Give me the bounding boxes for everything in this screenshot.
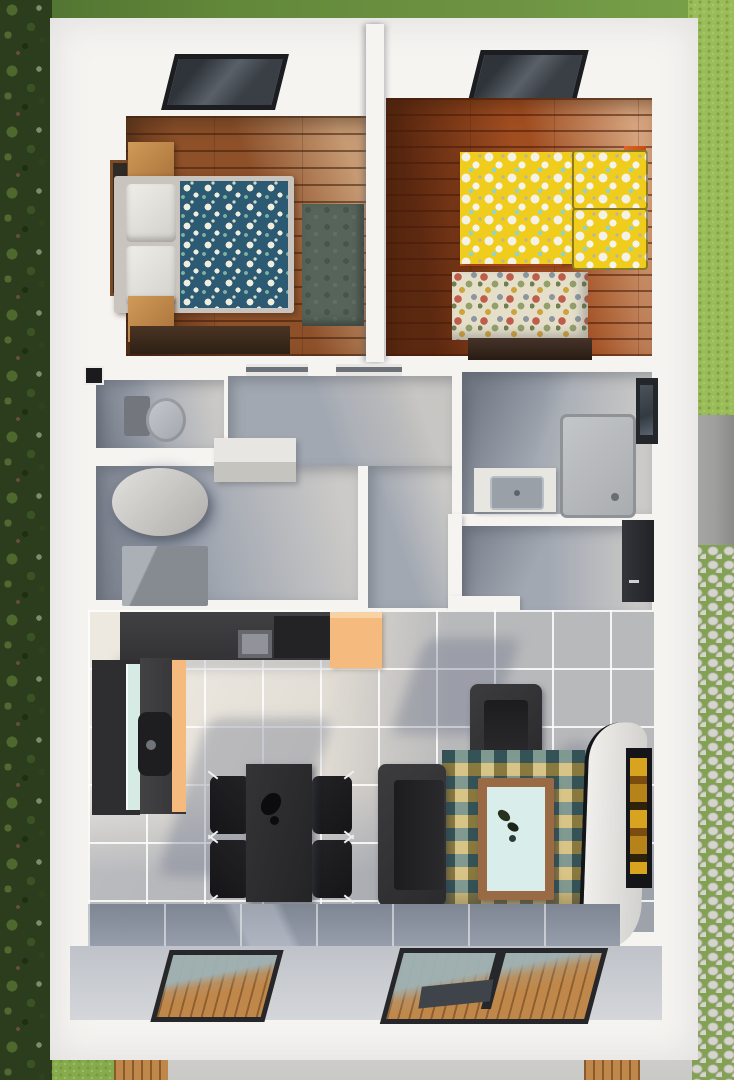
bedroom2-skylight (467, 50, 588, 104)
kitchen-stove (238, 630, 272, 658)
bedroom1-bed (114, 176, 294, 313)
wc-wall-niche (84, 366, 104, 385)
coffee-table-plant-2 (506, 821, 520, 834)
laundry-wall-shelf (214, 438, 296, 482)
floorplan-scene (0, 0, 734, 1080)
hedge-left (0, 0, 52, 1080)
bedroom1-green-rug (302, 204, 364, 326)
coffee-table-decor (509, 835, 516, 842)
kitchen-orange-cabinet (330, 612, 382, 668)
bathroom-window (636, 378, 658, 444)
armchair-top (470, 684, 542, 758)
vanity-basin (490, 476, 544, 510)
toilet-bowl (146, 398, 186, 442)
bedroom1-duvet (180, 181, 288, 308)
coffee-table (478, 778, 554, 900)
bedroom1-pillow-1 (126, 184, 176, 242)
bedroom2-pillow-top (572, 150, 648, 210)
dining-chair-3 (312, 776, 352, 834)
table-bottle (257, 789, 286, 819)
living-bottom-wall (88, 904, 620, 950)
glass-door-left (150, 950, 283, 1022)
water-tank (112, 468, 208, 536)
bedroom2-pillow-bottom (572, 208, 648, 270)
door-lintel-bedroom1 (246, 364, 308, 376)
hallway-floor-lower (368, 466, 452, 608)
bedroom2-dresser (468, 338, 592, 360)
dining-chair-2 (210, 840, 250, 898)
dining-chair-1 (210, 776, 250, 834)
kitchen-sink (138, 712, 172, 776)
vanity-counter (474, 468, 556, 512)
table-bottle-cap (270, 816, 279, 825)
shower-drain (611, 493, 619, 501)
sofa-seat (394, 780, 444, 890)
bedroom2-rug (452, 272, 588, 340)
bedroom1-dresser (130, 326, 290, 354)
bedroom1-skylight (161, 54, 289, 110)
front-door-handle (629, 580, 639, 583)
washer-unit (122, 546, 208, 606)
kitchen-faucet (146, 740, 156, 750)
basin-drain (514, 490, 520, 496)
kitchen-hood-dark (274, 616, 330, 658)
kitchen-orange-front-strip (172, 660, 186, 812)
sofa-left (378, 764, 446, 906)
bathroom-window-glass (640, 385, 653, 435)
door-lintel-bedroom2 (336, 364, 402, 376)
wall-screen (626, 748, 652, 888)
glass-door-right (380, 948, 608, 1024)
dining-chair-4 (312, 840, 352, 898)
shower-tray (560, 414, 636, 518)
bedroom-divider-wall (366, 24, 384, 362)
armchair-seat (484, 700, 528, 756)
front-door (622, 520, 654, 602)
dining-table (246, 764, 312, 902)
wall-screen-content (630, 758, 647, 874)
